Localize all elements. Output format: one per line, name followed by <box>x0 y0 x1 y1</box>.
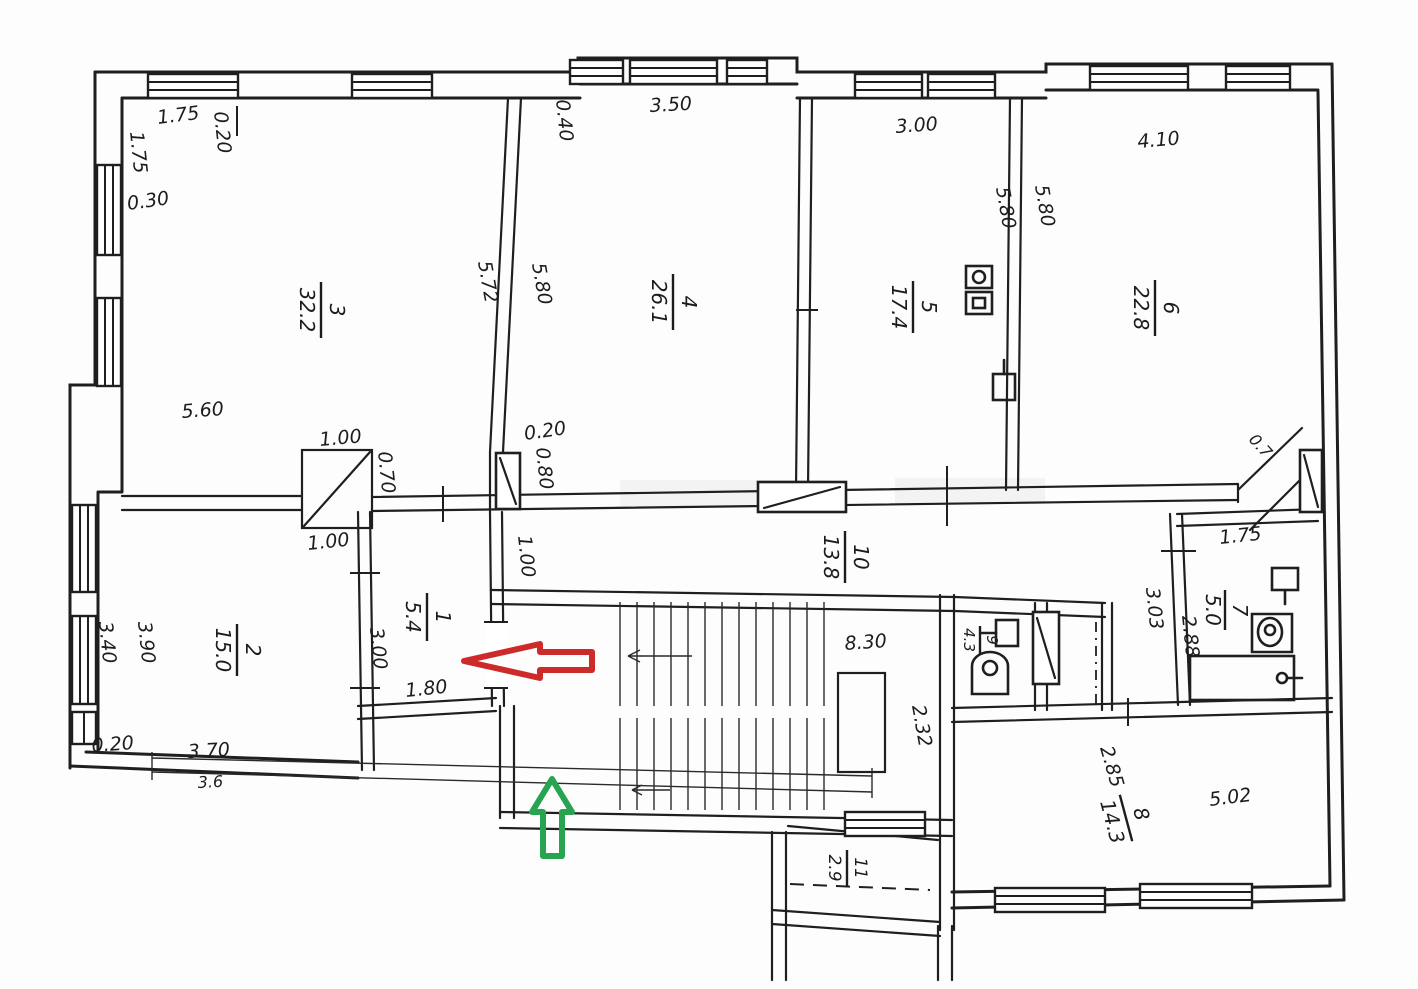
dim-label: 3.70 <box>187 739 230 763</box>
dim-label: 0.70 <box>373 450 399 494</box>
window <box>1090 66 1188 90</box>
dim-label: 1.00 <box>306 529 350 555</box>
dim-label: 3.40 <box>94 620 120 664</box>
room-area: 5.4 <box>401 601 425 633</box>
room-number: 4 <box>677 296 701 309</box>
room-area: 4.3 <box>960 628 978 652</box>
dim-label: 4.10 <box>1137 127 1181 153</box>
room-label-5: 5 17.4 <box>887 281 941 333</box>
sink-icon <box>1272 568 1298 604</box>
room-area: 14.3 <box>1095 797 1130 846</box>
sink-icon <box>993 360 1015 400</box>
stove-icon <box>966 292 992 314</box>
dim-label: 0.40 <box>551 98 577 142</box>
dim-label: 1.00 <box>319 425 363 451</box>
dim-label: 1.75 <box>1218 523 1262 549</box>
dim-label: 3.00 <box>895 113 939 138</box>
dim-label: 1.00 <box>513 534 539 578</box>
dim-label: 3.03 <box>1141 586 1167 630</box>
room-number: 6 <box>1159 302 1183 315</box>
dim-label: 5.80 <box>1030 183 1059 228</box>
room-label-4: 4 26.1 <box>647 274 701 330</box>
room-label-11: 11 2.9 <box>824 850 870 886</box>
window <box>72 505 96 592</box>
stair-treads <box>620 602 824 810</box>
room-label-8: 8 14.3 <box>1095 788 1160 848</box>
bathtub-icon <box>1190 656 1302 700</box>
dim-label: 5.72 <box>473 259 502 304</box>
dim-label: 2.85 <box>1095 743 1128 790</box>
door <box>758 482 846 512</box>
room-area: 32.2 <box>295 288 319 333</box>
floor-plan-svg: 1.75 0.20 1.75 0.30 5.60 1.00 0.70 1.00 … <box>0 0 1418 989</box>
window <box>855 74 922 98</box>
window <box>630 60 717 84</box>
room-number: 2 <box>241 644 265 657</box>
dim-label: 2.88 <box>1177 614 1203 658</box>
dim-label: 5.80 <box>527 261 556 306</box>
stairwell-shaft <box>838 673 885 772</box>
window <box>72 616 96 704</box>
room-area: 13.8 <box>819 535 843 580</box>
room-labels: 1 5.4 2 15.0 3 32.2 4 26.1 5 17.4 6 22.8 <box>211 274 1252 886</box>
window <box>570 60 623 84</box>
room-area: 2.9 <box>824 854 844 881</box>
green-arrow-up <box>532 779 572 856</box>
dim-label: 0.20 <box>91 732 135 757</box>
room-label-1: 1 5.4 <box>401 593 455 641</box>
room-label-6: 6 22.8 <box>1129 280 1183 336</box>
door <box>496 453 520 509</box>
window <box>1140 884 1252 908</box>
entrance-opening <box>845 812 925 836</box>
floor-plan-page: 1.75 0.20 1.75 0.30 5.60 1.00 0.70 1.00 … <box>0 0 1418 989</box>
room-number: 5 <box>917 301 941 314</box>
dim-label: 0.20 <box>523 417 568 445</box>
window <box>727 60 767 84</box>
room-area: 26.1 <box>647 280 671 325</box>
dim-label: 5.80 <box>991 185 1020 230</box>
dim-label: 1.75 <box>156 102 201 129</box>
room-area: 22.8 <box>1129 286 1153 331</box>
room-number: 3 <box>325 304 349 317</box>
scan-smudge <box>895 478 1045 504</box>
dim-label: 0.20 <box>209 110 235 154</box>
dim-label: 1.80 <box>404 676 448 702</box>
toilet-icon <box>1252 614 1292 652</box>
room11-dashed-partition <box>790 884 930 890</box>
room-number: 9 <box>983 635 1001 645</box>
room-number: 8 <box>1128 805 1154 824</box>
dim-label: 5.60 <box>181 398 225 423</box>
interior-walls <box>122 98 1332 980</box>
door <box>1300 450 1322 512</box>
room-area: 17.4 <box>887 285 911 330</box>
room-area: 15.0 <box>211 628 235 673</box>
room-area: 5.0 <box>1201 594 1225 626</box>
stair-direction-arrow <box>628 650 692 662</box>
room-label-3: 3 32.2 <box>295 282 349 338</box>
dim-label: 3.90 <box>133 620 159 664</box>
dim-label: 0.80 <box>531 446 557 490</box>
room-number: 1 <box>431 611 455 624</box>
dim-label: 2.32 <box>907 703 936 748</box>
room-number: 7 <box>1228 604 1252 617</box>
red-arrow-left <box>464 644 592 678</box>
dim-label: 3.00 <box>365 626 391 670</box>
window <box>995 888 1105 912</box>
door <box>1033 612 1059 684</box>
window <box>1226 66 1290 90</box>
window <box>97 298 121 386</box>
dim-label: 8.30 <box>844 630 888 655</box>
window <box>148 74 238 98</box>
dim-label: 3.50 <box>649 93 692 117</box>
dim-label-partial: 3.6 <box>197 772 223 792</box>
dim-label: 1.75 <box>125 130 151 174</box>
room-label-2: 2 15.0 <box>211 624 265 676</box>
room-number: 10 <box>849 544 873 569</box>
dim-label: 0.30 <box>126 187 171 215</box>
room-number: 11 <box>850 857 870 879</box>
window <box>352 74 432 98</box>
window <box>97 165 121 255</box>
window <box>928 74 995 98</box>
dim-label: 5.02 <box>1208 784 1253 811</box>
room-label-10: 10 13.8 <box>819 531 873 583</box>
toilet-icon <box>972 652 1008 694</box>
stove-icon <box>966 266 992 288</box>
room-label-7: 7 5.0 <box>1201 590 1252 630</box>
